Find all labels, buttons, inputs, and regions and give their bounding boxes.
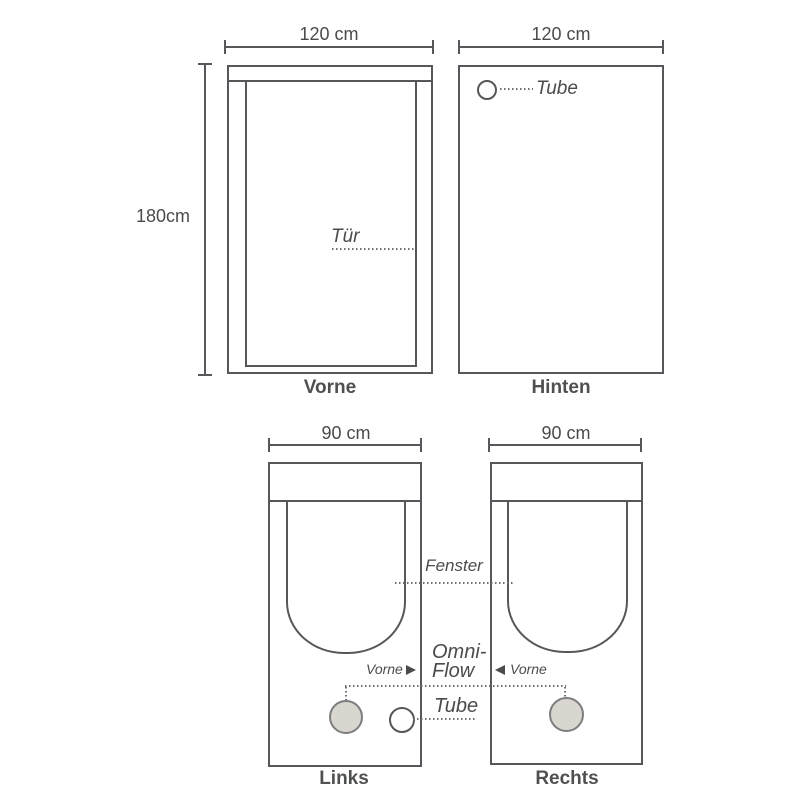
window-label: Fenster xyxy=(425,556,483,576)
direction-label-left: Vorne xyxy=(366,661,403,677)
right-width-label: 90 cm xyxy=(541,423,590,444)
left-tube-port-circle xyxy=(389,707,415,733)
window-leader-line xyxy=(395,582,513,584)
left-width-label: 90 cm xyxy=(321,423,370,444)
back-width-label: 120 cm xyxy=(531,24,590,45)
arrow-left-icon xyxy=(495,665,505,675)
front-height-dim-tick-bottom xyxy=(198,374,212,376)
right-window-outline xyxy=(507,501,628,653)
front-width-dim-tick-right xyxy=(432,40,434,54)
front-width-label: 120 cm xyxy=(299,24,358,45)
back-width-dim-tick-right xyxy=(662,40,664,54)
front-door-leader-line xyxy=(332,248,416,250)
tube-leader-line xyxy=(413,718,477,720)
front-height-dim-line xyxy=(204,63,206,376)
back-tent-outline xyxy=(458,65,664,374)
front-height-label: 180cm xyxy=(136,206,190,227)
omniflow-label-line2: Flow xyxy=(432,660,474,683)
back-width-dim-line xyxy=(458,46,664,48)
omniflow-leader-line-left-drop xyxy=(345,687,347,700)
right-width-dim-tick-right xyxy=(640,438,642,452)
left-width-dim-tick-left xyxy=(268,438,270,452)
tent-dimension-diagram: 120 cm 180cm Tür Vorne 120 cm Tube Hinte… xyxy=(0,0,800,800)
omniflow-leader-line-horizontal xyxy=(345,685,566,687)
back-tube-port-circle xyxy=(477,80,497,100)
right-width-dim-line xyxy=(488,444,642,446)
back-width-dim-tick-left xyxy=(458,40,460,54)
left-window-outline xyxy=(286,501,406,654)
right-view-caption: Rechts xyxy=(535,768,598,790)
front-width-dim-tick-left xyxy=(224,40,226,54)
front-door-label: Tür xyxy=(331,226,360,248)
left-omniflow-vent-circle xyxy=(329,700,363,734)
left-width-dim-tick-right xyxy=(420,438,422,452)
front-door-outline xyxy=(245,80,417,367)
omniflow-leader-line-right-drop xyxy=(564,687,566,697)
back-tube-leader-line xyxy=(500,88,533,90)
tube-label: Tube xyxy=(434,695,478,718)
right-omniflow-vent-circle xyxy=(549,697,584,732)
front-width-dim-line xyxy=(224,46,434,48)
front-height-dim-tick-top xyxy=(198,63,212,65)
back-tube-label: Tube xyxy=(536,78,578,100)
left-width-dim-line xyxy=(268,444,422,446)
arrow-right-icon xyxy=(406,665,416,675)
front-view-caption: Vorne xyxy=(304,377,356,399)
right-width-dim-tick-left xyxy=(488,438,490,452)
left-view-caption: Links xyxy=(319,768,369,790)
back-view-caption: Hinten xyxy=(531,377,590,399)
direction-label-right: Vorne xyxy=(510,661,547,677)
